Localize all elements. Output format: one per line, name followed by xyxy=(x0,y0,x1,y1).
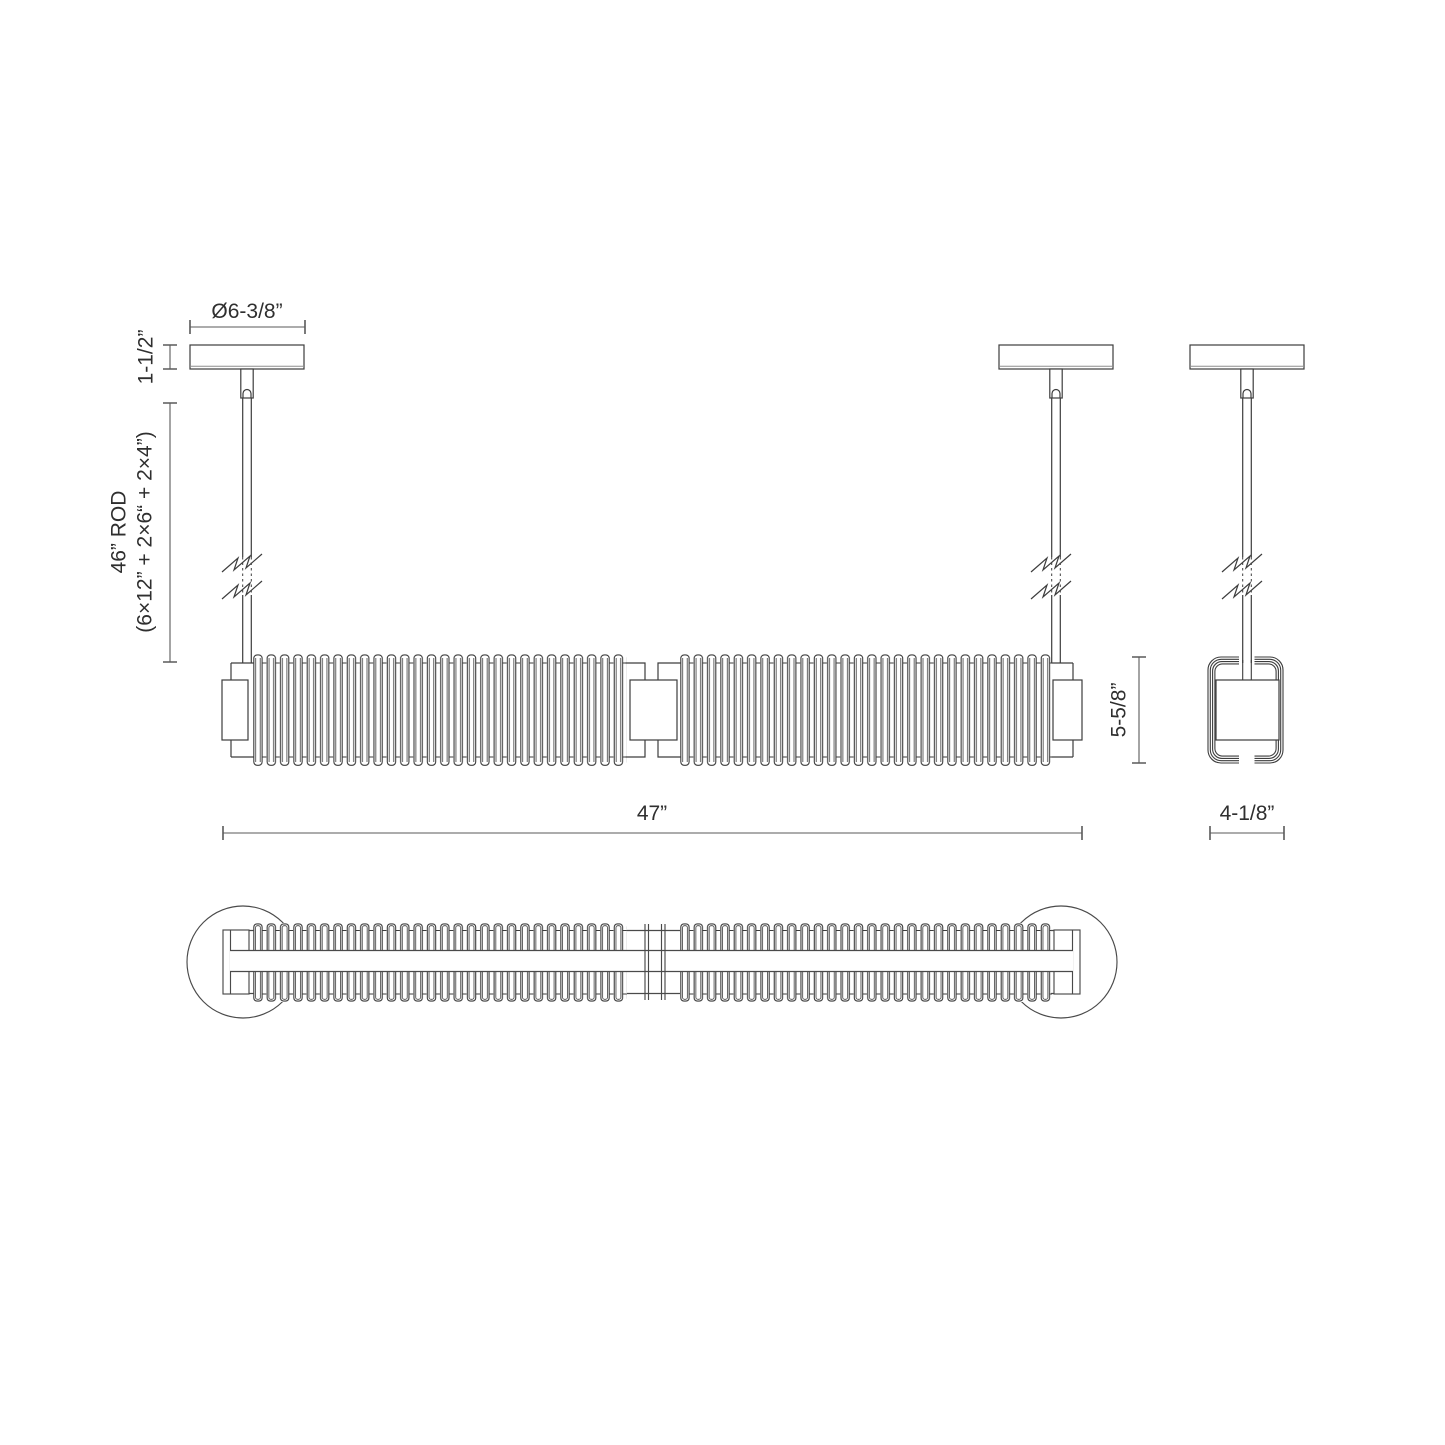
end-center-housing xyxy=(1216,680,1279,740)
plan-center-spine xyxy=(230,951,1073,972)
dim-rod-length-line xyxy=(163,403,177,662)
dim-body-height-label: 5-5/8” xyxy=(1108,683,1131,738)
end-shell-slot-bottom xyxy=(1239,740,1255,766)
dim-body-depth-label: 4-1/8” xyxy=(1220,802,1275,825)
hanger-right xyxy=(999,345,1113,663)
front-ribbed-section-left xyxy=(253,654,627,766)
dim-canopy-height-label: 1-1/2” xyxy=(135,330,158,385)
hanger-left xyxy=(190,345,304,663)
dim-canopy-height-line xyxy=(163,345,177,369)
front-view xyxy=(222,654,1082,766)
dim-body-depth-line xyxy=(1210,826,1284,840)
dim-rod-length-label: 46” ROD xyxy=(108,491,131,574)
front-ribbed-section-right xyxy=(680,654,1052,766)
hangers xyxy=(190,345,1304,663)
drawing-canvas: Ø6-3/8” 1-1/2” 46” ROD (6×12” + 2×6“ + 2… xyxy=(0,0,1445,1445)
front-endcap-left xyxy=(222,680,248,740)
hanger-end xyxy=(1190,345,1304,663)
end-shell-slot-top xyxy=(1239,655,1255,681)
dim-rod-breakdown-label: (6×12” + 2×6“ + 2×4”) xyxy=(134,431,157,632)
dim-body-height-line xyxy=(1132,657,1146,763)
dim-canopy-diameter-label: Ø6-3/8” xyxy=(211,300,282,323)
dim-overall-length-label: 47” xyxy=(637,802,667,825)
plan-view xyxy=(187,906,1117,1018)
front-endcap-right xyxy=(1053,680,1082,740)
dim-overall-length-line xyxy=(223,826,1082,840)
dimension-drawing: Ø6-3/8” 1-1/2” 46” ROD (6×12” + 2×6“ + 2… xyxy=(0,0,1445,1445)
front-center-housing xyxy=(630,680,677,740)
